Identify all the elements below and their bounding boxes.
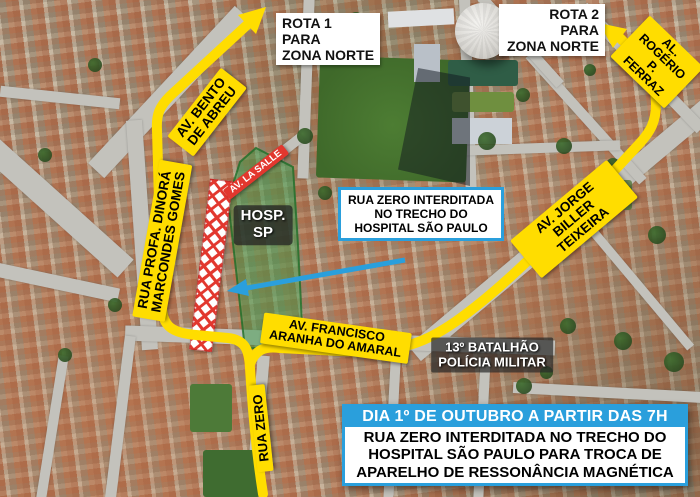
info-banner: DIA 1º DE OUTUBRO A PARTIR DAS 7H RUA ZE… [342,404,688,486]
banner-description: RUA ZERO INTERDITADA NO TRECHO DO HOSPIT… [345,427,685,483]
rota2-sign: ROTA 2 PARA ZONA NORTE [499,4,605,56]
banner-date-header: DIA 1º DE OUTUBRO A PARTIR DAS 7H [345,407,685,427]
satellite-map: ROTA 1 PARA ZONA NORTE ROTA 2 PARA ZONA … [0,0,700,497]
hospital-label: HOSP. SP [234,205,293,245]
battalion-label: 13º BATALHÃO POLÍCIA MILITAR [431,337,553,372]
rota1-sign: ROTA 1 PARA ZONA NORTE [276,13,380,65]
closure-callout: RUA ZERO INTERDITADA NO TRECHO DO HOSPIT… [338,187,504,241]
